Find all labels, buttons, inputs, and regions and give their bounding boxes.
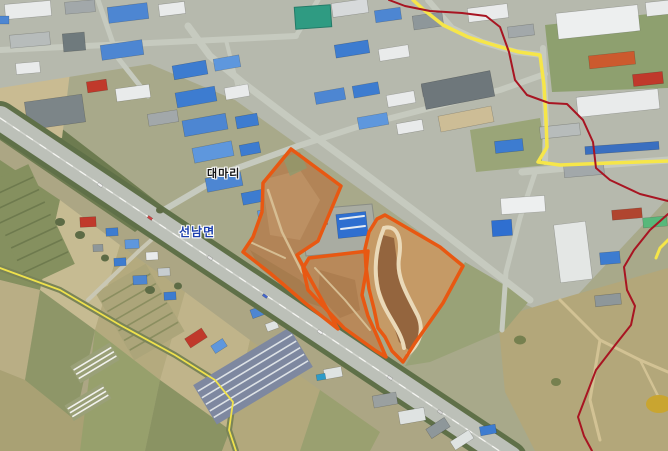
building [600,251,621,265]
building [164,292,176,301]
building [146,252,158,261]
building [106,228,118,237]
building [594,293,621,307]
building [133,275,147,285]
building [62,32,85,52]
building [158,268,170,277]
tree [174,283,182,290]
building [93,244,103,252]
building [491,219,512,236]
sports-court [294,5,331,29]
building [125,239,139,249]
tree [101,255,109,262]
tree [55,218,65,226]
building [316,373,326,380]
district-label: 선남면 [179,223,215,240]
building [16,61,41,74]
building [645,0,668,17]
tree [145,286,155,294]
satellite-imagery [0,0,668,451]
building [65,0,96,14]
tree [551,378,561,386]
tree [156,207,164,214]
building [554,221,593,282]
satellite-map: 대마리 선남면 [0,0,668,451]
building [494,139,523,154]
village-label: 대마리 [207,165,240,181]
building [500,195,545,214]
building [114,258,126,267]
tree [514,336,526,345]
building [80,217,97,228]
tree [75,231,85,239]
building [0,16,9,24]
